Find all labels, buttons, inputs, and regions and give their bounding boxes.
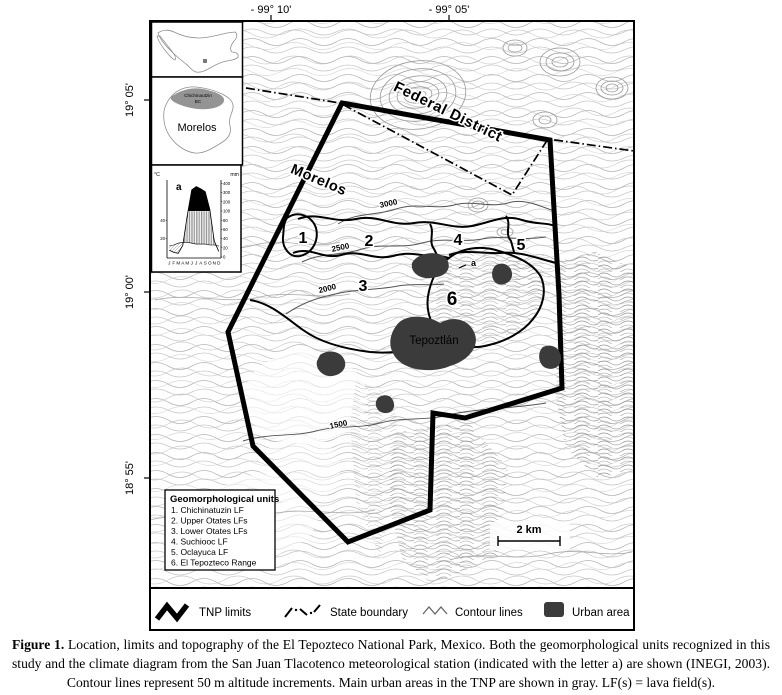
figure-caption-text: Location, limits and topography of the E… — [12, 637, 770, 690]
geo-unit-item: 1. Chichinatuzin LF — [171, 505, 244, 515]
geo-units-title: Geomorphological units — [170, 494, 279, 505]
svg-text:N: N — [213, 261, 216, 266]
morelos-state-label: Morelos — [177, 122, 217, 134]
figure-page: - 99° 10' - 99° 05' 19° 05' 19° 00' 18° … — [0, 0, 782, 695]
legend-tnp-label: TNP limits — [199, 607, 251, 619]
latitude-label-3: 18° 55' — [124, 461, 136, 495]
svg-text:80: 80 — [223, 218, 228, 223]
svg-text:60: 60 — [223, 227, 228, 232]
legend-urban-swatch — [544, 602, 564, 617]
svg-text:20: 20 — [223, 245, 228, 250]
climate-left-unit: °C — [154, 172, 160, 178]
geo-unit-item: 4. Suchiooc LF — [171, 537, 228, 547]
map-figure: - 99° 10' - 99° 05' 19° 05' 19° 00' 18° … — [0, 0, 782, 640]
figure-caption-label: Figure 1. — [12, 637, 64, 652]
unit-label-3: 3 — [359, 278, 368, 295]
tepoztlan-label: Tepoztlán — [409, 335, 458, 347]
scale-bar: 2 km — [490, 522, 570, 550]
geo-units-legend: Geomorphological units 1. Chichinatuzin … — [165, 490, 279, 570]
scale-bar-label: 2 km — [516, 524, 541, 536]
unit-label-1: 1 — [299, 230, 308, 247]
svg-text:200: 200 — [223, 199, 231, 204]
figure-caption: Figure 1. Location, limits and topograph… — [12, 636, 770, 692]
geo-unit-item: 2. Upper Otates LFs — [171, 516, 248, 526]
climate-right-unit: mm — [230, 172, 239, 178]
unit-label-5: 5 — [517, 237, 526, 254]
geo-unit-item: 3. Lower Otates LFs — [171, 526, 248, 536]
svg-text:J: J — [168, 261, 170, 266]
inset-mexico — [152, 22, 243, 77]
svg-text:M: M — [176, 261, 180, 266]
climate-month-labels: J F M A M J J A S O N D — [168, 261, 221, 266]
svg-text:J: J — [191, 261, 193, 266]
longitude-label-2: - 99° 05' — [429, 4, 470, 16]
latitude-label-1: 19° 05' — [124, 83, 136, 117]
unit-label-2: 2 — [365, 233, 374, 250]
latitude-label-2: 19° 00' — [124, 275, 136, 309]
svg-text:100: 100 — [223, 209, 231, 214]
svg-text:F: F — [172, 261, 175, 266]
legend-bar: TNP limits State boundary Contour lines … — [150, 588, 634, 630]
svg-text:40: 40 — [160, 218, 165, 223]
climate-station-letter: a — [176, 182, 182, 193]
svg-text:O: O — [208, 261, 212, 266]
svg-text:S: S — [204, 261, 207, 266]
unit-label-6: 6 — [447, 289, 458, 310]
svg-text:300: 300 — [223, 190, 231, 195]
geo-unit-item: 5. Oclayuca LF — [171, 547, 228, 557]
unit-label-4: 4 — [454, 232, 463, 249]
svg-text:M: M — [185, 261, 189, 266]
svg-text:20: 20 — [160, 236, 165, 241]
legend-state-boundary-label: State boundary — [330, 607, 408, 619]
chichinautzin-label: Chichinautzin — [184, 93, 212, 98]
svg-text:J: J — [195, 261, 197, 266]
location-marker — [203, 59, 207, 63]
svg-text:40: 40 — [223, 236, 228, 241]
chichinautzin-bc-label: BC — [195, 99, 202, 104]
climate-diagram: °C mm a 400 300 200 100 80 60 40 20 0 — [152, 165, 242, 272]
svg-text:400: 400 — [223, 181, 231, 186]
geo-unit-item: 6. El Tepozteco Range — [171, 558, 257, 568]
inset-morelos-state: Chichinautzin BC Morelos — [152, 77, 243, 165]
longitude-label-1: - 99° 10' — [251, 4, 292, 16]
legend-urban-label: Urban area — [572, 607, 630, 619]
legend-contour-label: Contour lines — [455, 607, 523, 619]
